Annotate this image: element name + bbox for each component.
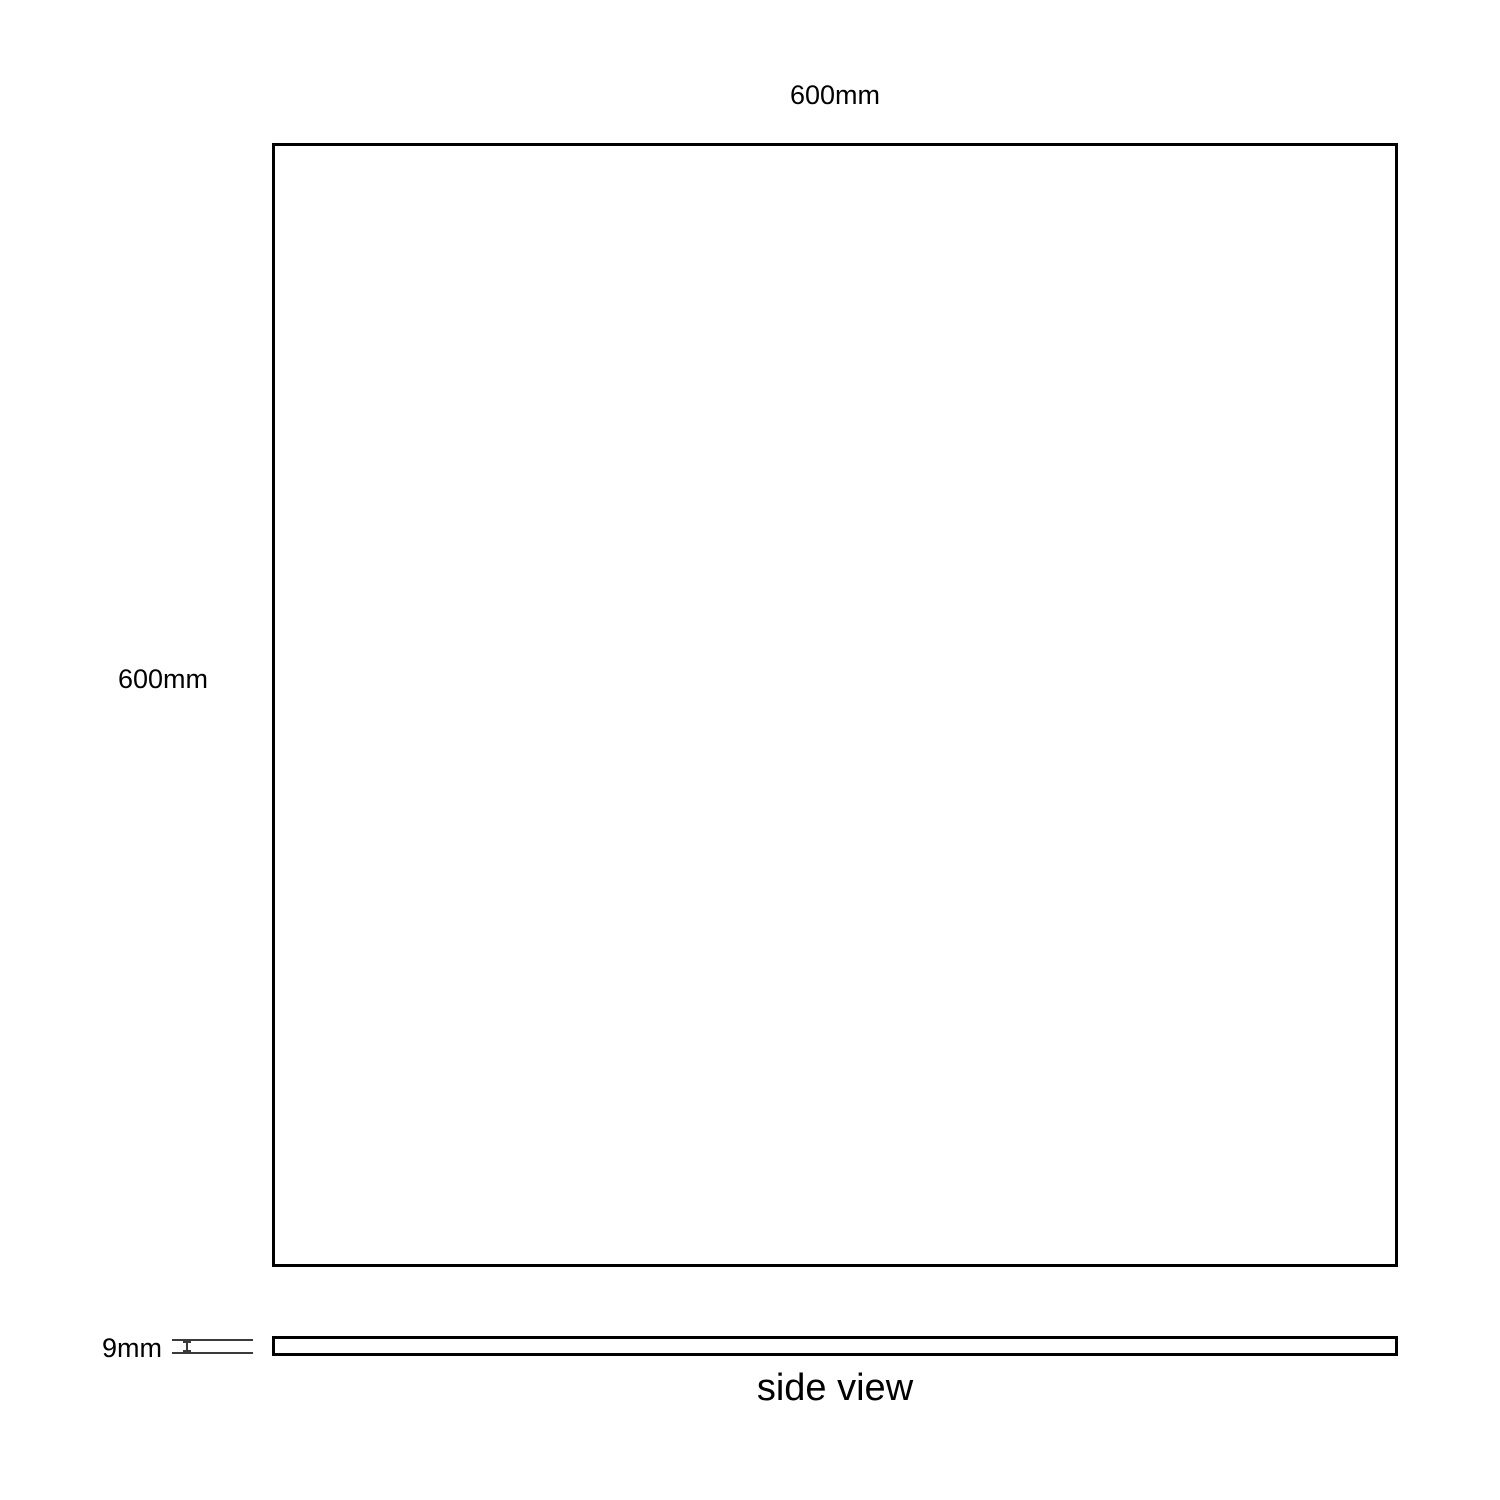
side-view-caption: side view: [272, 1366, 1398, 1410]
dimension-diagram: 600mm 600mm 9mm side view: [0, 0, 1500, 1500]
side-view-thickness-label: 9mm: [102, 1335, 162, 1362]
thickness-dimension-tick-serif-bottom: [183, 1350, 191, 1352]
front-view-width-label: 600mm: [272, 82, 1398, 109]
front-view-height-label: 600mm: [118, 666, 208, 693]
front-view-panel-outline: [272, 143, 1398, 1267]
thickness-dimension-bottom-line: [172, 1352, 253, 1354]
side-view-panel-outline: [272, 1336, 1398, 1356]
thickness-dimension-tick-serif-top: [183, 1341, 191, 1343]
